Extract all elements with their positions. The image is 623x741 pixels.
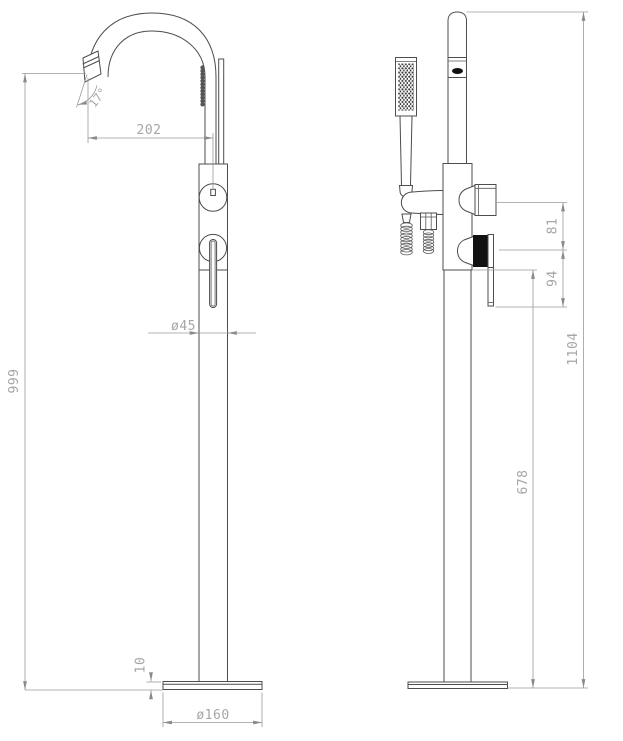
base-plate-side (408, 682, 508, 689)
spout-outer-arc (88, 13, 216, 77)
dim-base-thickness: 10 (134, 657, 149, 674)
hand-shower-handle (400, 116, 412, 186)
lever-outer (210, 240, 217, 308)
column-side (444, 270, 471, 682)
dim-spout-reach: 202 (137, 123, 162, 138)
riser-tube (448, 12, 467, 164)
diverter-notch (211, 189, 216, 195)
dim-handle-spacing: 94 (546, 270, 561, 287)
dim-diverter-spacing: 81 (546, 218, 561, 235)
base-plate-front (163, 682, 262, 690)
shower-holder (401, 191, 443, 215)
hose-connector (402, 214, 411, 223)
shower-face-dots (398, 64, 414, 111)
shower-hose (401, 214, 413, 255)
supply-hose (421, 213, 437, 254)
faucet-technical-drawing: 999 17° 202 ø45 10 ø160 1104 678 (0, 0, 623, 741)
dim-spout-height: 999 (7, 369, 22, 394)
dim-total-height: 1104 (566, 332, 581, 365)
spout-inner-arc (108, 31, 205, 77)
dim-column-diameter: ø45 (171, 319, 196, 334)
handle-grip-dark (474, 236, 489, 267)
dim-base-diameter: ø160 (196, 708, 229, 723)
technical-drawing-page: 999 17° 202 ø45 10 ø160 1104 678 (0, 0, 623, 741)
dim-lever-height: 678 (516, 470, 531, 495)
dim-spout-angle: 17° (86, 85, 110, 110)
hose-nut (421, 213, 437, 230)
handle-lever-blade (488, 268, 494, 307)
slide-rail (219, 59, 224, 164)
side-view (396, 12, 508, 689)
front-view (83, 13, 262, 690)
logo-badge (452, 68, 463, 74)
handle-plate (488, 235, 494, 268)
dimension-annotations: 999 17° 202 ø45 10 ø160 1104 678 (7, 12, 588, 727)
